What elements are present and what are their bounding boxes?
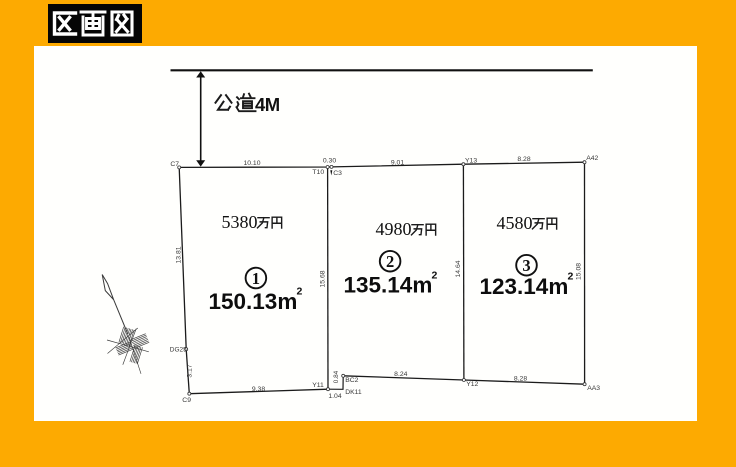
svg-text:13.81: 13.81 xyxy=(176,246,183,263)
svg-text:C3: C3 xyxy=(333,170,342,177)
svg-text:2: 2 xyxy=(432,269,438,281)
svg-text:1: 1 xyxy=(252,269,260,288)
svg-text:2: 2 xyxy=(568,271,574,283)
svg-text:DG25: DG25 xyxy=(170,347,187,354)
svg-text:8.24: 8.24 xyxy=(394,371,407,378)
svg-text:4M: 4M xyxy=(255,94,280,115)
svg-text:8.28: 8.28 xyxy=(514,375,527,382)
svg-text:4580: 4580 xyxy=(497,213,533,233)
svg-text:9.38: 9.38 xyxy=(252,386,265,393)
svg-text:123.14m: 123.14m xyxy=(480,274,569,299)
svg-text:15.08: 15.08 xyxy=(575,263,582,280)
svg-text:9.01: 9.01 xyxy=(391,160,404,167)
svg-text:14.64: 14.64 xyxy=(455,260,462,277)
svg-text:5380: 5380 xyxy=(222,212,258,232)
svg-text:0.84: 0.84 xyxy=(333,370,340,383)
svg-text:A42: A42 xyxy=(586,155,598,162)
svg-text:C9: C9 xyxy=(182,397,191,404)
svg-text:Y12: Y12 xyxy=(466,381,478,388)
svg-text:3: 3 xyxy=(522,256,530,275)
svg-text:T10: T10 xyxy=(312,169,324,176)
svg-text:C7: C7 xyxy=(170,161,179,168)
svg-text:AA3: AA3 xyxy=(587,385,600,392)
svg-text:15.68: 15.68 xyxy=(319,270,326,287)
svg-text:Y13: Y13 xyxy=(465,157,477,164)
svg-text:8.28: 8.28 xyxy=(517,156,530,163)
svg-text:2: 2 xyxy=(386,252,394,271)
svg-text:2: 2 xyxy=(297,285,303,297)
svg-text:0.30: 0.30 xyxy=(323,157,336,164)
svg-text:135.14m: 135.14m xyxy=(344,273,433,298)
svg-text:150.13m: 150.13m xyxy=(209,289,298,314)
svg-text:3.17: 3.17 xyxy=(187,364,194,377)
svg-text:Y11: Y11 xyxy=(312,382,324,389)
svg-text:4980: 4980 xyxy=(376,219,412,239)
svg-text:1.04: 1.04 xyxy=(328,393,341,400)
svg-text:10.10: 10.10 xyxy=(243,160,260,167)
svg-text:DK11: DK11 xyxy=(345,389,362,396)
svg-text:BC2: BC2 xyxy=(345,377,358,384)
